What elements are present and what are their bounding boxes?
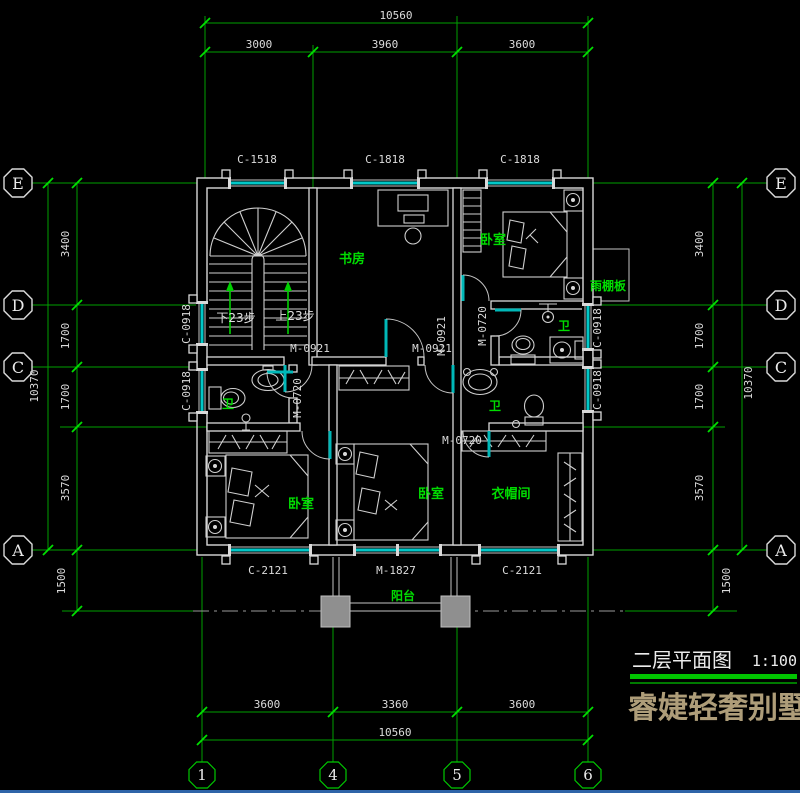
window-C2121-right (472, 544, 566, 564)
dim-left-seg-2: 1700 (59, 323, 72, 350)
dim-top-seg-3: 3600 (509, 38, 536, 51)
grid-row-C: C (12, 358, 24, 377)
room-study: 书房 (339, 251, 365, 267)
wall-mid-left (207, 423, 300, 431)
door-hall-right (425, 365, 453, 393)
grid-row-D: D (12, 296, 25, 315)
floor-plan-drawing: 10560 3000 3960 3600 3600 3360 3600 1056… (0, 0, 800, 793)
dim-top-seg-2: 3960 (372, 38, 399, 51)
bathroom-bottom-right-fixtures (463, 369, 544, 428)
stair-down-label: 下23步 (216, 311, 255, 325)
wardrobe-middle (339, 366, 409, 390)
grid-bubbles-right: E D C A (767, 169, 795, 564)
dim-left-seg-1: 3400 (59, 231, 72, 258)
cad-canvas: 10560 3000 3960 3600 3600 3360 3600 1056… (0, 0, 800, 793)
wall-hall-b (312, 357, 386, 365)
dim-bottom-seg-2: 3360 (382, 698, 409, 711)
room-bedroom-bottom-middle: 卧室 (418, 486, 444, 502)
window-C2121-left (222, 544, 318, 564)
room-bath-top-right: 卫 (558, 319, 570, 333)
title-underline (630, 674, 797, 679)
dim-left-seg-3: 1700 (59, 384, 72, 411)
label-window-C0918-right-upper: C-0918 (591, 308, 604, 348)
dim-bottom-seg-1: 3600 (254, 698, 281, 711)
grid-col-4: 4 (328, 766, 338, 784)
dim-right-seg-2: 1700 (693, 323, 706, 350)
wall-bathTR-left (491, 336, 499, 365)
grid-bubbles-left: E D C A (4, 169, 32, 564)
windows-glazing (189, 170, 601, 564)
staircase (209, 208, 307, 350)
label-door-M0720-bath-left: M-0720 (291, 378, 304, 418)
dim-left-offset: 1500 (55, 568, 68, 595)
dimension-text: 10560 3000 3960 3600 3600 3360 3600 1056… (28, 9, 755, 739)
door-bath-left (267, 372, 293, 398)
door-bath-top-right (495, 310, 521, 336)
dim-left-seg-4: 3570 (59, 475, 72, 502)
grid-row-E: E (12, 174, 24, 193)
balcony-column-right (441, 596, 470, 627)
dim-right-seg-1: 3400 (693, 231, 706, 258)
wall-mid-right (489, 423, 583, 431)
dim-top-seg-1: 3000 (246, 38, 273, 51)
grid-row-A-right: A (774, 541, 787, 560)
label-door-M0720-bath-top-right: M-0720 (476, 306, 489, 346)
balcony-column-left (321, 596, 350, 627)
balcony-railing (349, 603, 442, 611)
label-door-M1827: M-1827 (376, 564, 416, 577)
label-window-C2121-right: C-2121 (502, 564, 542, 577)
room-closet: 衣帽间 (491, 486, 530, 502)
wardrobe-bottom-left (209, 431, 287, 453)
label-window-C0918-left-lower: C-0918 (180, 371, 193, 411)
window-C1518 (222, 170, 293, 189)
grid-row-C-right: C (775, 358, 787, 377)
bed-bottom-middle (336, 444, 428, 540)
bathroom-top-right-fixtures (511, 304, 583, 364)
dim-bottom-seg-3: 3600 (509, 698, 536, 711)
label-window-C1818-bedroom: C-1818 (500, 153, 540, 166)
dim-bottom-overall: 10560 (378, 726, 411, 739)
grid-bubbles-bottom: 1 4 5 6 (189, 762, 601, 788)
label-window-C0918-right-lower: C-0918 (591, 370, 604, 410)
room-canopy: 雨棚板 (590, 278, 627, 293)
room-balcony: 阳台 (391, 588, 415, 603)
brand-name: 睿婕轻奢别墅 (628, 691, 800, 726)
window-C1818-study (344, 170, 426, 189)
grid-col-6: 6 (583, 766, 593, 784)
wall-hall-a (207, 357, 284, 365)
label-window-C0918-left-upper: C-0918 (180, 304, 193, 344)
wardrobe-closet-right (558, 453, 582, 541)
wall-gridD-right (491, 301, 583, 309)
grid-col-1: 1 (197, 766, 207, 784)
window-C1818-bedroom (479, 170, 561, 189)
dim-top-overall: 10560 (379, 9, 412, 22)
wall-hall-c (418, 357, 424, 365)
label-window-C1518: C-1518 (237, 153, 277, 166)
label-door-M0921-left: M-0921 (290, 342, 330, 355)
label-door-M0921-vertical: M-0921 (435, 316, 448, 356)
stair-direction-arrows (226, 281, 292, 334)
label-window-C1818-study: C-1818 (365, 153, 405, 166)
dim-right-overall: 10370 (742, 366, 755, 399)
room-bedroom-top-right: 卧室 (480, 232, 506, 248)
label-door-M0720-closet: M-0720 (442, 434, 482, 447)
canopy-outline (593, 249, 629, 301)
room-bath-bottom-right: 卫 (489, 399, 501, 413)
room-bath-left: 卫 (222, 397, 234, 411)
dim-right-offset: 1500 (720, 568, 733, 595)
wall-stair-right (309, 188, 317, 365)
title-block: 二层平面图 1:100 睿婕轻奢别墅 (628, 648, 800, 726)
door-M1827-balcony (353, 544, 442, 556)
grid-row-A: A (11, 541, 24, 560)
grid-row-D-right: D (775, 296, 788, 315)
dim-right-seg-4: 3570 (693, 475, 706, 502)
door-bedroom-top-right (463, 275, 489, 301)
title-underline-thin (630, 682, 797, 684)
grid-col-5: 5 (452, 766, 462, 784)
desk (378, 190, 448, 244)
grid-row-E-right: E (775, 174, 787, 193)
bathroom-left-fixtures (209, 366, 284, 430)
drawing-scale: 1:100 (752, 652, 797, 670)
stair-up-label: 上23步 (275, 309, 314, 323)
room-bedroom-bottom-left: 卧室 (288, 496, 314, 512)
label-window-C2121-left: C-2121 (248, 564, 288, 577)
drawing-title: 二层平面图 (632, 648, 732, 672)
dim-right-seg-3: 1700 (693, 384, 706, 411)
